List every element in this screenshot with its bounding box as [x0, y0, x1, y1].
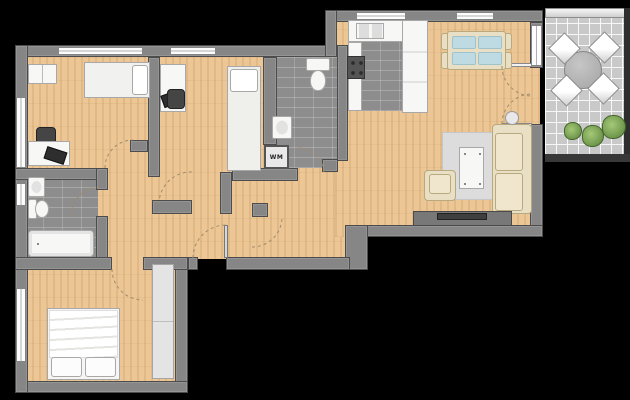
balcony-edge-bottom: [545, 154, 630, 162]
coffee-table: [459, 147, 484, 189]
wall: [130, 140, 148, 152]
window: [16, 288, 26, 362]
wall: [226, 257, 350, 270]
table-glass: [452, 52, 476, 65]
bed-duvet: [49, 310, 118, 358]
window: [170, 47, 216, 55]
window: [58, 47, 143, 55]
wall: [175, 257, 188, 393]
wall: [220, 172, 232, 214]
sofa: [492, 124, 532, 214]
wall: [152, 200, 192, 214]
window: [456, 12, 494, 20]
toilet: [310, 70, 326, 91]
window: [16, 183, 26, 206]
kitchen-tall-unit: [402, 20, 428, 113]
table-glass: [478, 52, 502, 65]
bed-pillow: [85, 357, 116, 377]
wall: [96, 216, 108, 262]
stove: [347, 56, 365, 79]
bed-pillow: [51, 357, 82, 377]
floor-kitchen: [361, 41, 402, 111]
wall: [188, 257, 198, 270]
entrance-door-leaf: [224, 225, 228, 258]
wardrobe: [152, 264, 174, 379]
sink: [272, 116, 292, 139]
bed-pillow: [230, 69, 258, 92]
table-glass: [452, 36, 476, 49]
wall: [252, 203, 268, 217]
armchair-seat: [429, 174, 451, 194]
floor-lamp: [505, 111, 519, 125]
toilet: [35, 200, 49, 218]
desk-chair: [167, 89, 185, 109]
balcony-edge-right: [624, 8, 630, 162]
window: [356, 12, 406, 20]
bathtub: [28, 230, 94, 257]
bed-pillow: [132, 65, 148, 95]
balcony-railing: [545, 8, 626, 18]
tv: [437, 213, 487, 220]
armchair: [424, 170, 456, 201]
sofa-cushion: [495, 173, 523, 211]
window: [16, 97, 26, 168]
dining-table: [447, 31, 506, 70]
window: [531, 25, 542, 66]
wall: [15, 381, 188, 393]
plant: [582, 125, 604, 147]
sink: [28, 177, 45, 197]
wall: [325, 10, 337, 57]
kitchen-sink: [356, 23, 384, 39]
wall: [96, 168, 108, 190]
shelf: [28, 64, 57, 84]
wall: [322, 159, 338, 172]
wall: [15, 257, 112, 270]
wall: [365, 225, 543, 237]
sofa-cushion: [495, 133, 523, 171]
floor-plan: WM: [0, 0, 630, 400]
table-glass: [478, 36, 502, 49]
washing-machine: WM: [264, 145, 289, 169]
entrance-doorway: [198, 259, 226, 272]
